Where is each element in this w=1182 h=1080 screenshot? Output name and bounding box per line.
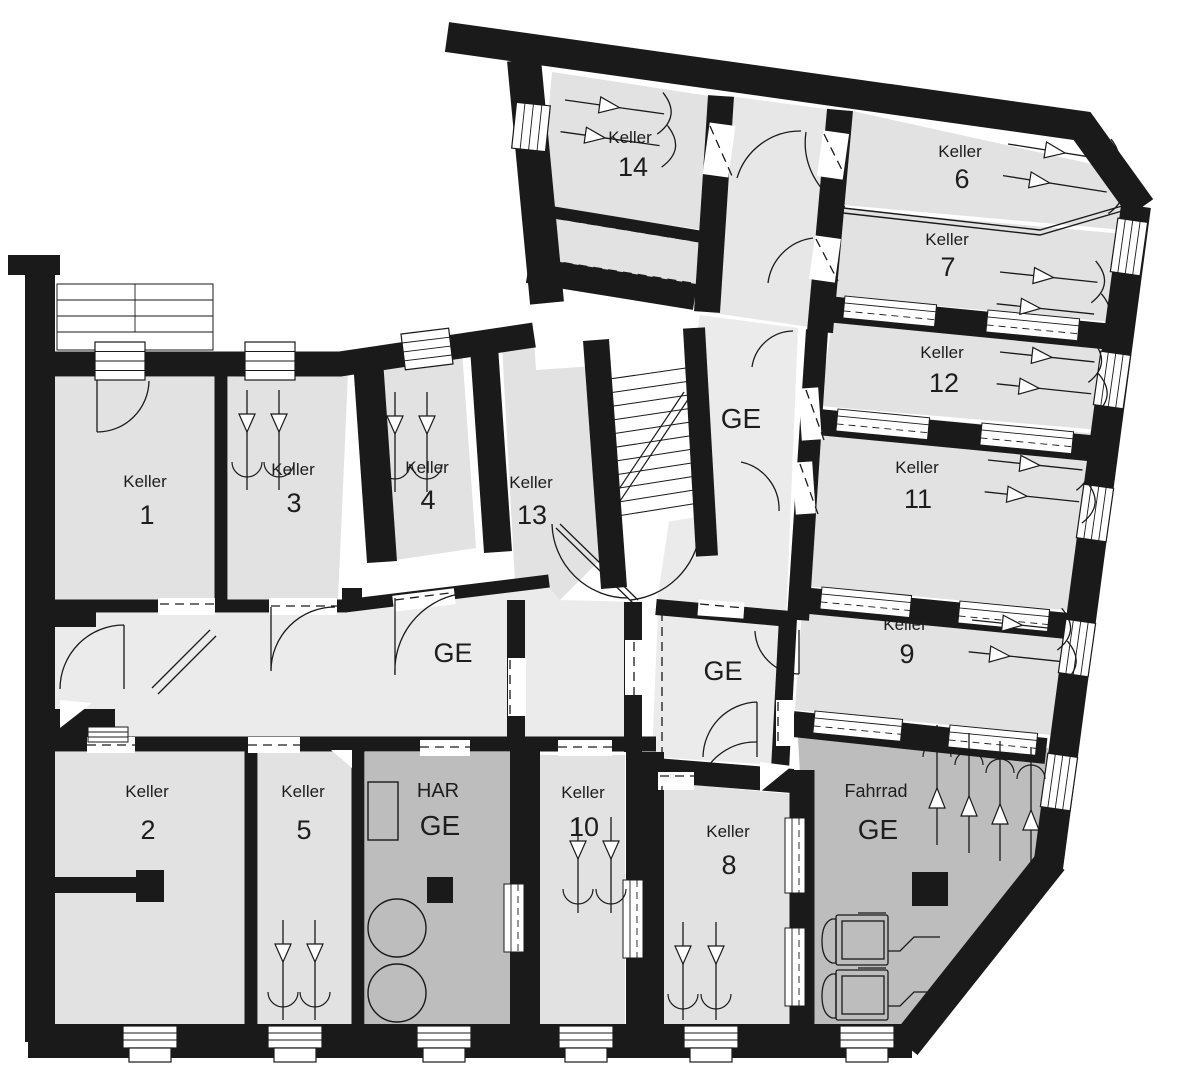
- window-icon: [401, 328, 453, 370]
- room-keller-4: [383, 350, 476, 560]
- area-ge-vestibule: [652, 610, 788, 765]
- label-keller-4: Keller: [405, 458, 449, 477]
- column-corridor: [342, 588, 362, 610]
- label-keller-10: Keller: [561, 783, 605, 802]
- num-keller-2: 2: [140, 815, 155, 845]
- num-keller-5: 5: [296, 815, 311, 845]
- room-keller-8: [662, 782, 790, 1026]
- label-keller-9: Keller: [883, 615, 927, 634]
- window-icon: [840, 1026, 894, 1062]
- external-grid: [57, 284, 213, 350]
- label-keller-1: Keller: [123, 472, 167, 491]
- num-keller-4: 4: [420, 485, 435, 515]
- num-keller-6: 6: [954, 164, 969, 194]
- num-keller-7: 7: [940, 252, 955, 282]
- label-ge-vestibule: GE: [703, 656, 742, 686]
- num-keller-12: 12: [929, 368, 959, 398]
- column-keller2: [136, 870, 164, 902]
- room-keller-13: [502, 334, 600, 600]
- column-fahrrad: [912, 872, 948, 906]
- window-icon: [684, 1026, 738, 1062]
- label-ge-corridor: GE: [433, 638, 472, 668]
- window-icon: [268, 1026, 322, 1062]
- num-keller-14: 14: [618, 152, 648, 182]
- num-keller-1: 1: [139, 500, 154, 530]
- num-keller-8: 8: [721, 850, 736, 880]
- label-fahrrad: Fahrrad: [844, 781, 907, 801]
- window-icon: [559, 1026, 613, 1062]
- window-icon: [123, 1026, 177, 1062]
- label-keller-11: Keller: [895, 458, 939, 477]
- num-keller-10: 10: [569, 812, 599, 842]
- wall-stub: [8, 255, 60, 275]
- lattice-window-icon: [785, 928, 805, 1006]
- num-keller-9: 9: [899, 639, 914, 669]
- window-icon: [95, 342, 145, 380]
- floor-plan: Keller 1 Keller 2 Keller 3 Keller 4 Kell…: [0, 0, 1182, 1080]
- label-ge-main: GE: [721, 403, 761, 434]
- label-keller-13: Keller: [509, 473, 553, 492]
- label-keller-12: Keller: [920, 343, 964, 362]
- room-keller-3: [228, 373, 348, 600]
- label-har: HAR: [417, 780, 459, 802]
- threshold: [88, 727, 128, 742]
- num-keller-13: 13: [517, 500, 547, 530]
- label-keller-2: Keller: [125, 782, 169, 801]
- window-icon: [512, 102, 551, 151]
- window-icon: [417, 1026, 471, 1062]
- label-keller-14: Keller: [608, 128, 652, 147]
- label-fahrrad-ge: GE: [858, 814, 898, 845]
- column-har: [427, 877, 453, 903]
- num-keller-11: 11: [904, 484, 932, 514]
- label-keller-3: Keller: [271, 460, 315, 479]
- label-keller-6: Keller: [938, 142, 982, 161]
- room-keller-14: [540, 72, 716, 230]
- num-keller-3: 3: [286, 488, 301, 518]
- label-keller-7: Keller: [925, 230, 969, 249]
- window-icon: [245, 342, 295, 380]
- label-keller-8: Keller: [706, 822, 750, 841]
- lattice-window-icon: [504, 884, 524, 952]
- floor-plan-svg: Keller 1 Keller 2 Keller 3 Keller 4 Kell…: [0, 0, 1182, 1080]
- label-har-ge: GE: [420, 810, 460, 841]
- label-keller-5: Keller: [281, 782, 325, 801]
- lattice-window-icon: [785, 818, 805, 893]
